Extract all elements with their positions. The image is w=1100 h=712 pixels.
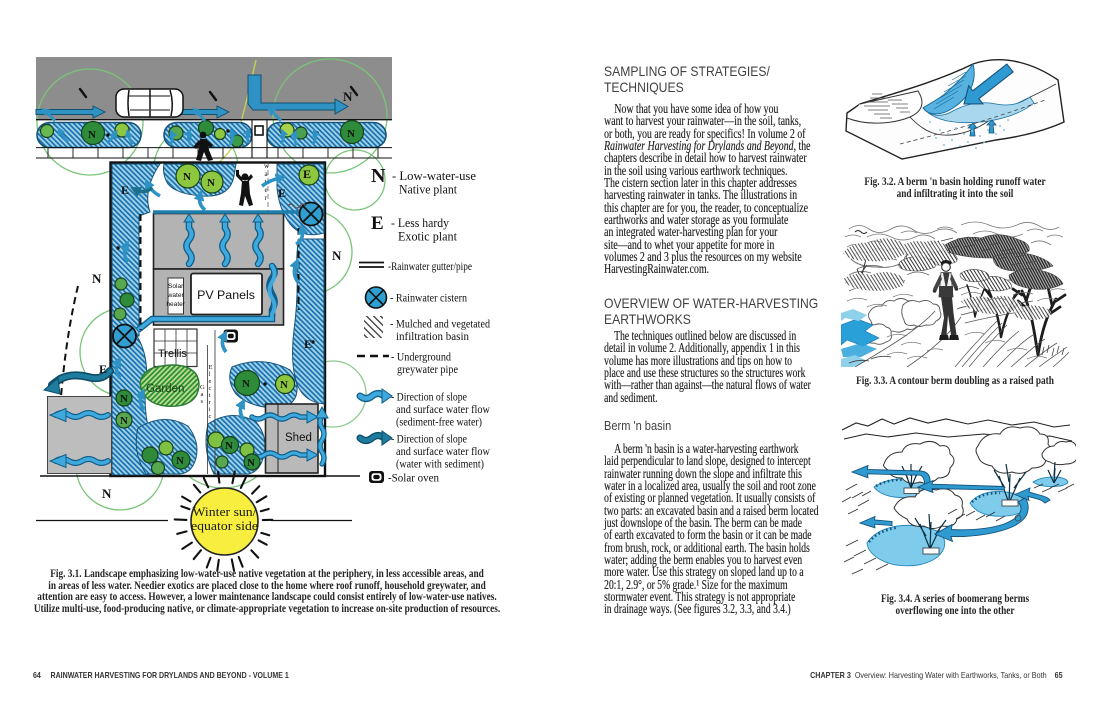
svg-text:E: E — [209, 364, 213, 371]
svg-text:c: c — [209, 385, 212, 392]
svg-text:N: N — [332, 248, 342, 263]
svg-text:E: E — [303, 167, 311, 181]
svg-text:E: E — [99, 362, 107, 376]
svg-text:E: E — [371, 213, 384, 234]
svg-text:Solar: Solar — [168, 283, 184, 290]
svg-text:N: N — [207, 177, 215, 189]
svg-text:(sediment-free water): (sediment-free water) — [396, 415, 482, 429]
svg-text:N: N — [347, 128, 355, 140]
svg-text:PV Panels: PV Panels — [197, 288, 255, 302]
svg-text:N: N — [242, 378, 250, 390]
svg-text:-Rainwater gutter/pipe: -Rainwater gutter/pipe — [388, 259, 472, 273]
svg-text:Shed: Shed — [285, 432, 312, 444]
svg-text:infiltration basin: infiltration basin — [396, 329, 469, 343]
svg-text:l: l — [209, 371, 211, 378]
svg-text:N: N — [120, 393, 128, 405]
svg-text:E: E — [304, 337, 312, 351]
svg-text:equator side: equator side — [191, 519, 258, 533]
svg-text:N: N — [343, 89, 353, 104]
svg-text:N: N — [371, 165, 386, 187]
svg-text:greywater pipe: greywater pipe — [397, 362, 458, 376]
svg-text:(water with sediment): (water with sediment) — [396, 457, 484, 471]
svg-text:Trellis: Trellis — [158, 348, 187, 360]
svg-text:a: a — [201, 391, 204, 398]
svg-text:G: G — [200, 384, 205, 391]
svg-text:N: N — [247, 457, 255, 469]
svg-text:e: e — [265, 186, 268, 194]
svg-text:N: N — [176, 455, 184, 467]
svg-text:Native plant: Native plant — [399, 183, 457, 197]
svg-text:N: N — [183, 171, 191, 183]
svg-text:s: s — [201, 398, 204, 405]
svg-text:N: N — [92, 271, 102, 286]
svg-text:N: N — [102, 486, 112, 501]
svg-text:- Rainwater cistern: - Rainwater cistern — [390, 291, 467, 305]
svg-text:t: t — [209, 392, 211, 399]
svg-text:c: c — [209, 413, 212, 420]
svg-text:Garden: Garden — [146, 383, 184, 395]
svg-text:-Solar oven: -Solar oven — [388, 471, 439, 485]
svg-text:N: N — [280, 379, 288, 391]
svg-text:water: water — [167, 292, 185, 299]
svg-text:N: N — [225, 440, 233, 452]
svg-text:i: i — [209, 406, 211, 413]
svg-text:Exotic plant: Exotic plant — [398, 230, 457, 244]
svg-text:Winter sun/: Winter sun/ — [193, 505, 258, 519]
svg-text:- Low-water-use: - Low-water-use — [392, 169, 476, 183]
svg-text:E: E — [278, 186, 286, 200]
svg-text:N: N — [120, 415, 128, 427]
svg-text:E: E — [121, 183, 129, 197]
svg-text:- Less hardy: - Less hardy — [391, 216, 450, 230]
svg-text:heater: heater — [166, 301, 186, 308]
svg-text:N: N — [88, 129, 96, 141]
svg-text:e: e — [209, 378, 212, 385]
